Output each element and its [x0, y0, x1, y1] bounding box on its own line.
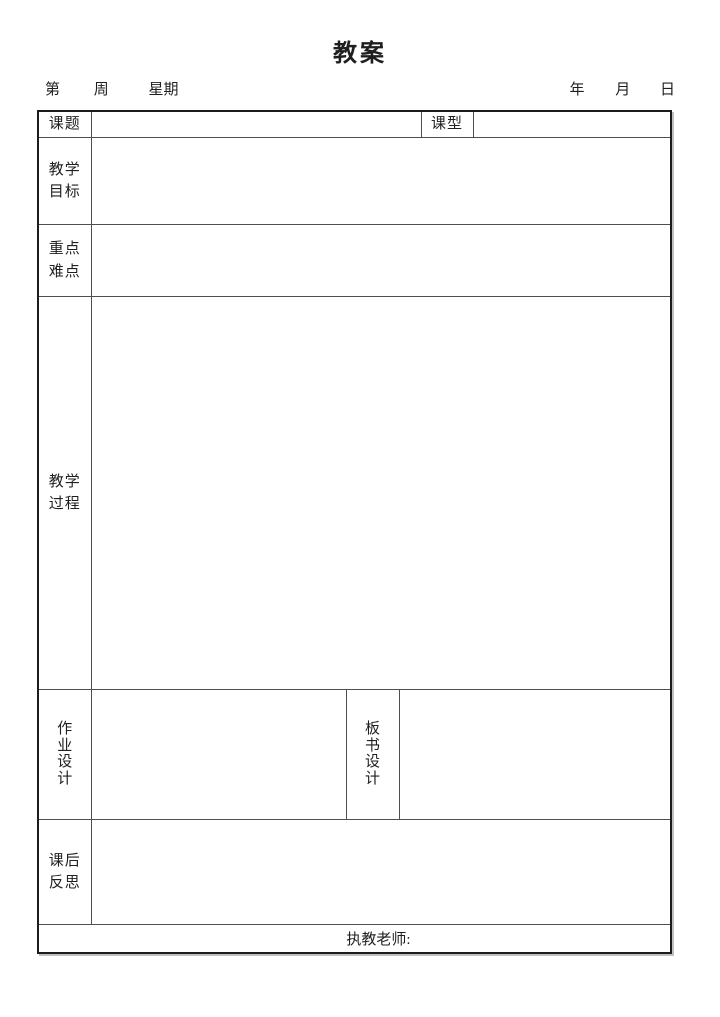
year-month-day-fields: 年 月 日	[569, 81, 675, 99]
board-input-cell[interactable]	[399, 690, 671, 820]
page-title: 教案	[0, 40, 720, 68]
week-weekday-fields: 第 周 星期	[45, 81, 179, 99]
table-row-process: 教学 过程	[38, 297, 671, 690]
lesson-type-label-cell: 课型	[421, 111, 473, 138]
objectives-label-cell: 教学 目标	[38, 138, 91, 225]
objectives-input-cell[interactable]	[91, 138, 671, 225]
homework-input-cell[interactable]	[91, 690, 346, 820]
process-label: 教学 过程	[49, 471, 81, 516]
teacher-signature-cell[interactable]: 执教老师:	[38, 925, 671, 954]
table-row-key-points: 重点 难点	[38, 225, 671, 297]
reflection-label-cell: 课后 反思	[38, 820, 91, 925]
reflection-input-cell[interactable]	[91, 820, 671, 925]
board-label-cell: 板 书 设 计	[346, 690, 399, 820]
year-label: 年	[569, 81, 584, 99]
table-row-homework-board: 作 业 设 计 板 书 设 计	[38, 690, 671, 820]
key-points-label-cell: 重点 难点	[38, 225, 91, 297]
table-row-topic: 课题 课型	[38, 111, 671, 138]
teacher-label: 执教老师:	[346, 932, 410, 948]
key-points-input-cell[interactable]	[91, 225, 671, 297]
objectives-label: 教学 目标	[49, 159, 81, 204]
lesson-type-input-cell[interactable]	[473, 111, 671, 138]
table-row-objectives: 教学 目标	[38, 138, 671, 225]
week-prefix-label: 第	[45, 81, 60, 99]
process-label-cell: 教学 过程	[38, 297, 91, 690]
month-label: 月	[615, 81, 630, 99]
date-header-line: 第 周 星期 年 月 日	[45, 81, 675, 99]
document-page: 教案 第 周 星期 年 月 日 课题	[0, 0, 720, 1017]
key-points-label: 重点 难点	[49, 238, 81, 283]
homework-label: 作 业 设 计	[57, 721, 72, 787]
lesson-plan-table: 课题 课型 教学 目标 重点 难点	[37, 110, 672, 954]
topic-input-cell[interactable]	[91, 111, 421, 138]
weekday-label: 星期	[149, 81, 179, 99]
lesson-type-label: 课型	[431, 113, 463, 136]
table-row-teacher: 执教老师:	[38, 925, 671, 954]
topic-label: 课题	[49, 113, 81, 136]
board-label: 板 书 设 计	[365, 721, 380, 787]
reflection-label: 课后 反思	[49, 850, 81, 895]
week-unit-label: 周	[94, 81, 109, 99]
homework-label-cell: 作 业 设 计	[38, 690, 91, 820]
topic-label-cell: 课题	[38, 111, 91, 138]
table-row-reflection: 课后 反思	[38, 820, 671, 925]
process-input-cell[interactable]	[91, 297, 671, 690]
day-label: 日	[660, 81, 675, 99]
